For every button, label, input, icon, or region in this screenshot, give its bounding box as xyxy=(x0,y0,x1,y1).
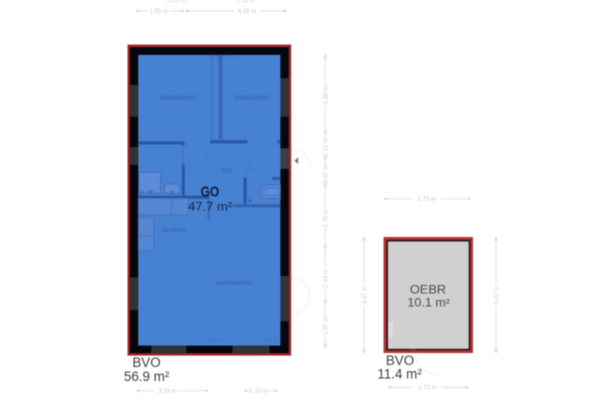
svg-text:1.93 m: 1.93 m xyxy=(263,338,277,343)
svg-text:3.47 m: 3.47 m xyxy=(362,286,368,304)
svg-text:keuken: keuken xyxy=(162,225,186,234)
svg-text:slaapkamer: slaapkamer xyxy=(234,93,272,102)
svg-text:1.13 m: 1.13 m xyxy=(324,138,330,156)
svg-text:2.73 m: 2.73 m xyxy=(418,197,436,203)
svg-text:0.47 m: 0.47 m xyxy=(324,165,330,183)
svg-text:1.55 m: 1.55 m xyxy=(149,9,167,15)
svg-text:2.92 m: 2.92 m xyxy=(237,0,255,5)
svg-text:woonkamer: woonkamer xyxy=(214,278,254,287)
svg-text:BVO: BVO xyxy=(132,355,160,370)
svg-text:OEBR: OEBR xyxy=(410,283,447,297)
svg-text:3.30 m 2.72 m: 3.30 m 2.72 m xyxy=(210,55,239,60)
svg-text:4.36 m: 4.36 m xyxy=(238,9,256,15)
svg-text:3.23 m: 3.23 m xyxy=(158,389,176,395)
svg-text:2.76 m: 2.76 m xyxy=(324,209,330,227)
svg-text:10.1 m²: 10.1 m² xyxy=(407,297,450,310)
svg-text:2.88 m: 2.88 m xyxy=(324,86,330,104)
svg-text:1.97 m: 1.97 m xyxy=(324,317,330,335)
svg-text:2.73 m: 2.73 m xyxy=(418,385,436,391)
svg-text:11.4 m²: 11.4 m² xyxy=(377,367,422,382)
svg-text:BVO: BVO xyxy=(386,353,414,368)
svg-text:2.08 m: 2.08 m xyxy=(167,0,185,5)
svg-text:3.47 m: 3.47 m xyxy=(494,286,500,304)
svg-text:47.7 m²: 47.7 m² xyxy=(188,199,232,213)
svg-text:slaapkamer: slaapkamer xyxy=(160,93,198,102)
svg-text:2.44 m: 2.44 m xyxy=(324,269,330,287)
svg-text:56.9 m²: 56.9 m² xyxy=(124,369,170,384)
svg-text:GO: GO xyxy=(201,184,220,200)
svg-text:1.10 m: 1.10 m xyxy=(250,389,268,395)
svg-text:4.21 m: 4.21 m xyxy=(209,338,223,343)
svg-text:hal: hal xyxy=(222,166,232,175)
